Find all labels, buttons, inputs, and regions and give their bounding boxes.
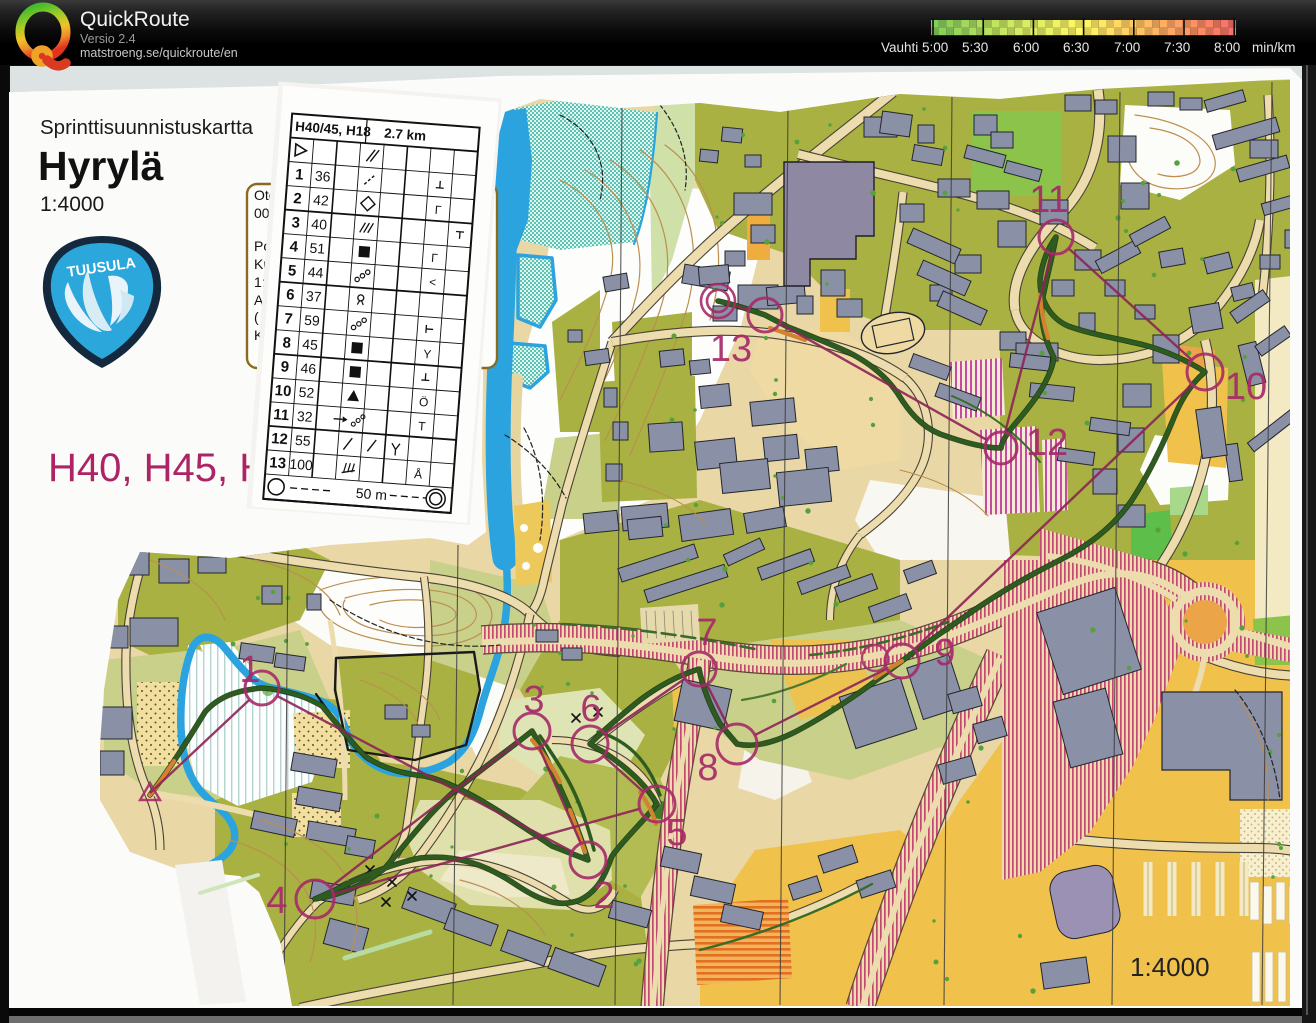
svg-text:6: 6 — [286, 286, 296, 304]
svg-text:12: 12 — [1026, 422, 1068, 464]
svg-text:55: 55 — [295, 432, 312, 449]
svg-text:8: 8 — [697, 747, 718, 789]
svg-text:2.7 km: 2.7 km — [384, 126, 427, 144]
svg-text:1:4000: 1:4000 — [40, 193, 104, 216]
svg-text:1:4000: 1:4000 — [1130, 952, 1210, 982]
svg-text:59: 59 — [304, 312, 321, 329]
svg-text:2: 2 — [293, 190, 303, 208]
svg-text:13: 13 — [269, 454, 287, 472]
svg-text:51: 51 — [309, 240, 326, 257]
svg-text:12: 12 — [271, 430, 289, 448]
svg-text:3: 3 — [291, 214, 301, 232]
svg-text:10: 10 — [1225, 366, 1267, 408]
svg-text:32: 32 — [296, 408, 313, 425]
svg-text:3: 3 — [523, 679, 544, 721]
svg-text:(: ( — [254, 309, 259, 325]
svg-text:11: 11 — [273, 406, 290, 424]
svg-text:37: 37 — [305, 288, 322, 305]
svg-text:Sprinttisuunnistuskartta: Sprinttisuunnistuskartta — [40, 116, 254, 139]
svg-text:1: 1 — [239, 649, 260, 691]
svg-text:45: 45 — [302, 336, 319, 353]
svg-text:100: 100 — [289, 456, 314, 474]
svg-text:Y: Y — [423, 347, 432, 362]
svg-text:5: 5 — [666, 812, 687, 854]
svg-text:50 m: 50 m — [355, 485, 387, 503]
svg-text:42: 42 — [313, 192, 330, 209]
svg-text:9: 9 — [280, 358, 290, 376]
svg-text:5: 5 — [287, 262, 297, 280]
svg-text:<: < — [429, 275, 437, 289]
svg-text:7: 7 — [284, 310, 294, 328]
svg-text:40: 40 — [311, 216, 328, 233]
svg-text:1: 1 — [295, 166, 305, 184]
svg-text:H40, H45, H: H40, H45, H — [48, 446, 268, 490]
svg-text:9: 9 — [934, 632, 955, 674]
svg-text:36: 36 — [314, 168, 331, 185]
svg-text:4: 4 — [266, 880, 287, 922]
svg-text:Å: Å — [414, 466, 423, 482]
svg-text:00: 00 — [254, 205, 270, 221]
svg-text:2: 2 — [593, 875, 614, 917]
svg-text:8: 8 — [282, 334, 292, 352]
svg-text:13: 13 — [710, 328, 752, 370]
svg-text:11: 11 — [1029, 179, 1068, 221]
svg-text:52: 52 — [298, 384, 315, 401]
svg-text:6: 6 — [580, 688, 601, 730]
svg-text:7: 7 — [696, 612, 717, 654]
svg-text:10: 10 — [274, 382, 292, 400]
svg-text:Ö: Ö — [418, 395, 428, 410]
svg-text:Hyrylä: Hyrylä — [38, 143, 164, 189]
svg-text:44: 44 — [307, 264, 324, 281]
svg-text:46: 46 — [300, 360, 317, 377]
